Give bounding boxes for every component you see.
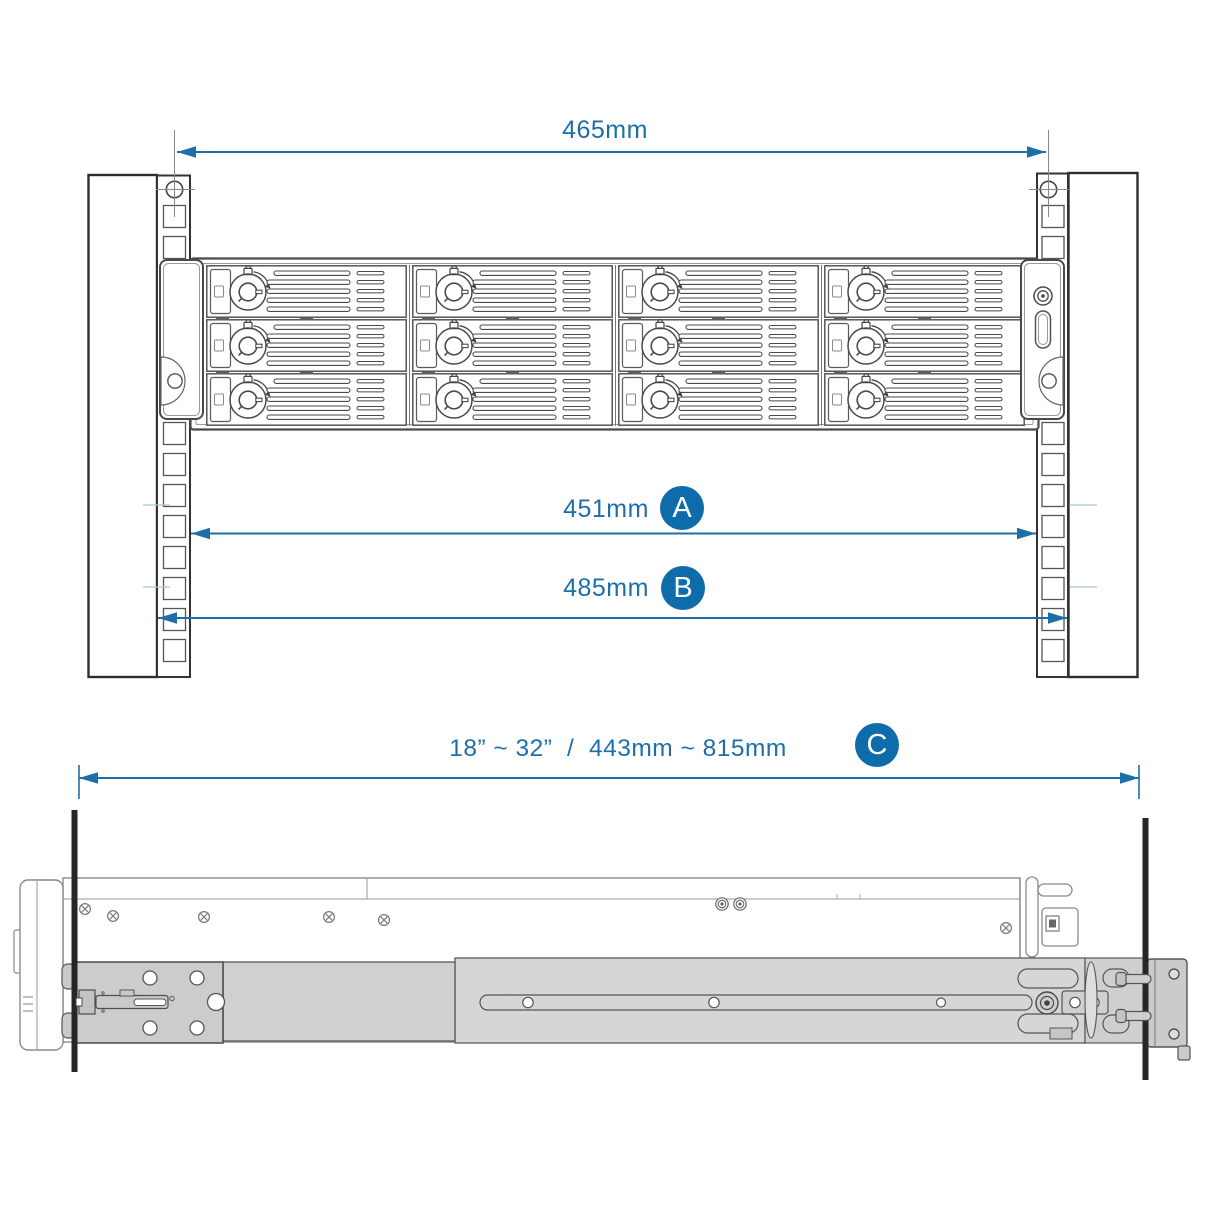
front-bezel (14, 880, 63, 1050)
status-led-bar (1036, 311, 1051, 348)
side-view (14, 765, 1190, 1080)
rack-post-right (1143, 818, 1149, 1080)
rail-end-bracket (1147, 959, 1190, 1060)
power-button-icon (1034, 287, 1052, 305)
dimension-a-badge: A (660, 486, 704, 530)
diagram-canvas (0, 0, 1214, 1214)
dimension-b-badge: B (661, 566, 705, 610)
rack-panel-left (89, 175, 158, 677)
nas-chassis (160, 259, 1064, 430)
mounting-ear-left (160, 260, 203, 419)
dimension-c-label: 18” ~ 32” / 443mm ~ 815mm (368, 735, 868, 763)
slide-rail (75, 958, 1145, 1043)
rail-adjust-screw (1036, 992, 1058, 1014)
rack-post-left (72, 810, 78, 1072)
dimension-line-c (79, 765, 1139, 799)
rear-latch-hardware (1026, 877, 1078, 957)
dimension-465-label: 465mm (505, 116, 705, 145)
rack-panel-right (1069, 173, 1138, 677)
rackmount-dimension-diagram: 465mm 451mm A 485mm B 18” ~ 32” / 443mm … (0, 0, 1214, 1214)
mounting-ear-right (1021, 260, 1064, 419)
dimension-c-badge: C (855, 723, 899, 767)
